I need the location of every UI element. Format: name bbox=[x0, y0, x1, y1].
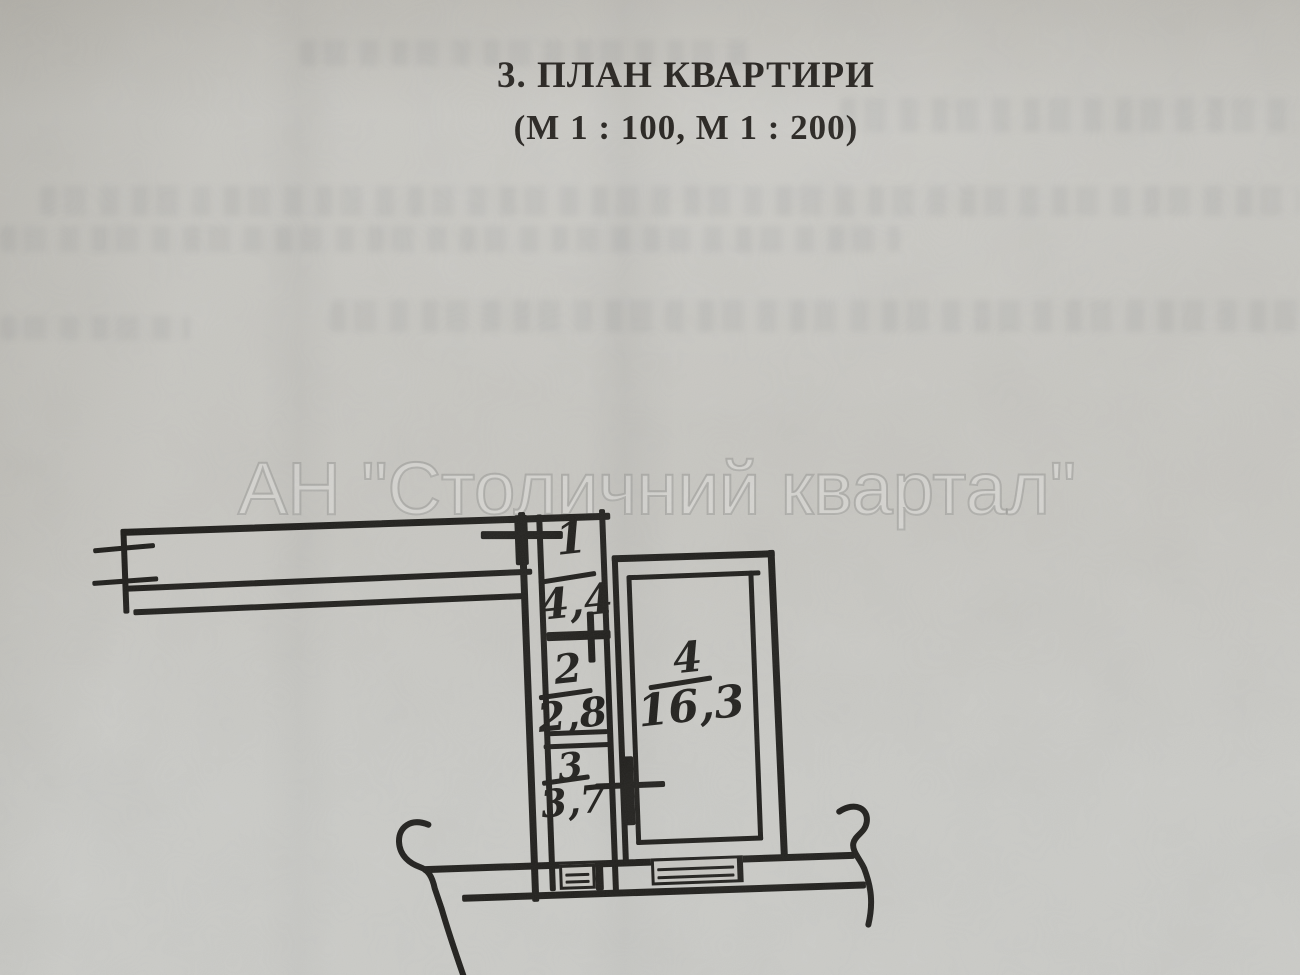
bleed-through-text-row bbox=[0, 226, 900, 252]
document-header: 3. ПЛАН КВАРТИРИ (М 1 : 100, М 1 : 200) bbox=[0, 56, 1300, 147]
scale-note: (М 1 : 100, М 1 : 200) bbox=[72, 109, 1300, 148]
wall-room4-outer-top bbox=[612, 550, 775, 562]
wall-room4-inner-top bbox=[627, 570, 760, 580]
room-3-area: 3,7 bbox=[534, 778, 614, 824]
wall-room4-inner-bottom bbox=[636, 835, 763, 845]
wall-corridor-bottom bbox=[133, 593, 527, 615]
bleed-through-text-row bbox=[330, 300, 1300, 332]
window-hatch-line bbox=[657, 866, 734, 872]
window-hatch-line bbox=[657, 874, 734, 880]
break-line-left bbox=[386, 811, 492, 975]
door-symbol-bar bbox=[546, 630, 610, 641]
photographed-document-page: 3. ПЛАН КВАРТИРИ (М 1 : 100, М 1 : 200) … bbox=[0, 0, 1300, 975]
window-symbol-jamb bbox=[514, 515, 529, 565]
wall-room4-outer-right bbox=[767, 550, 787, 858]
wall-room4-inner-right bbox=[748, 571, 763, 841]
wall-corridor-left-end bbox=[120, 530, 129, 614]
wall-corridor-middle bbox=[126, 569, 532, 592]
room-1-area: 4,4 bbox=[529, 576, 623, 627]
room-2-area: 2,8 bbox=[530, 691, 616, 739]
break-line-right bbox=[821, 797, 906, 935]
room-2-number: 2 bbox=[536, 646, 600, 692]
balcony-window-b bbox=[651, 855, 744, 885]
room-1-number: 1 bbox=[534, 514, 608, 565]
room-4-area: 16,3 bbox=[633, 679, 749, 735]
bleed-through-text-row bbox=[40, 186, 1300, 216]
wall-balcony-stub bbox=[595, 863, 604, 890]
window-hatch-line bbox=[565, 873, 589, 877]
page-title: 3. ПЛАН КВАРТИРИ bbox=[72, 56, 1300, 97]
balcony-window-a bbox=[559, 864, 596, 890]
window-hatch-line bbox=[566, 880, 590, 884]
bleed-through-text-row bbox=[0, 316, 190, 340]
floor-plan: 1 4,4 2 2,8 3 3,7 4 16,3 bbox=[79, 453, 922, 975]
